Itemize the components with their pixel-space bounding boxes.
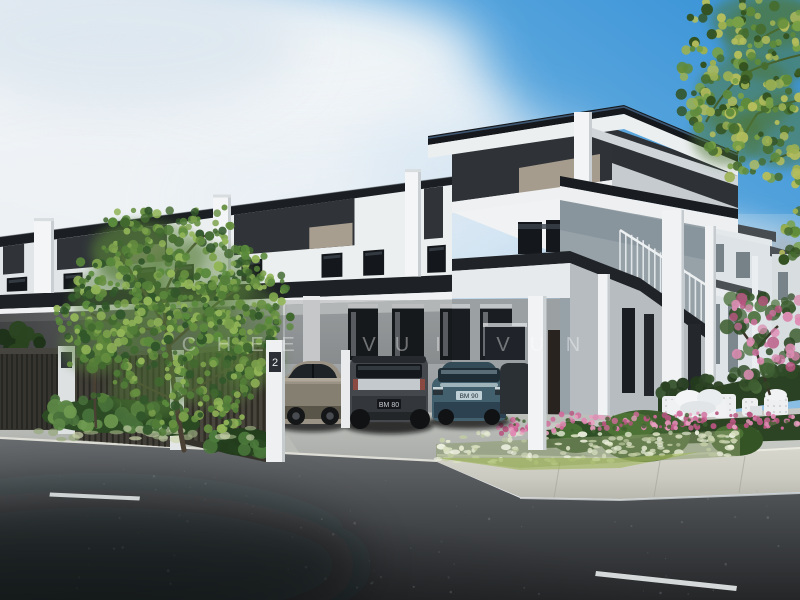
svg-text:2: 2 (272, 357, 278, 369)
svg-text:E: E (281, 334, 294, 356)
svg-text:U: U (530, 334, 544, 356)
svg-text:V: V (496, 334, 510, 356)
svg-text:N: N (566, 334, 580, 356)
svg-text:E: E (250, 334, 263, 356)
svg-text:H: H (217, 334, 231, 356)
svg-text:BM 80: BM 80 (379, 402, 399, 409)
svg-text:V: V (362, 334, 376, 356)
svg-text:U: U (395, 334, 409, 356)
svg-text:BM 90: BM 90 (460, 393, 479, 400)
svg-text:I: I (435, 334, 441, 356)
svg-text:C: C (182, 334, 196, 356)
